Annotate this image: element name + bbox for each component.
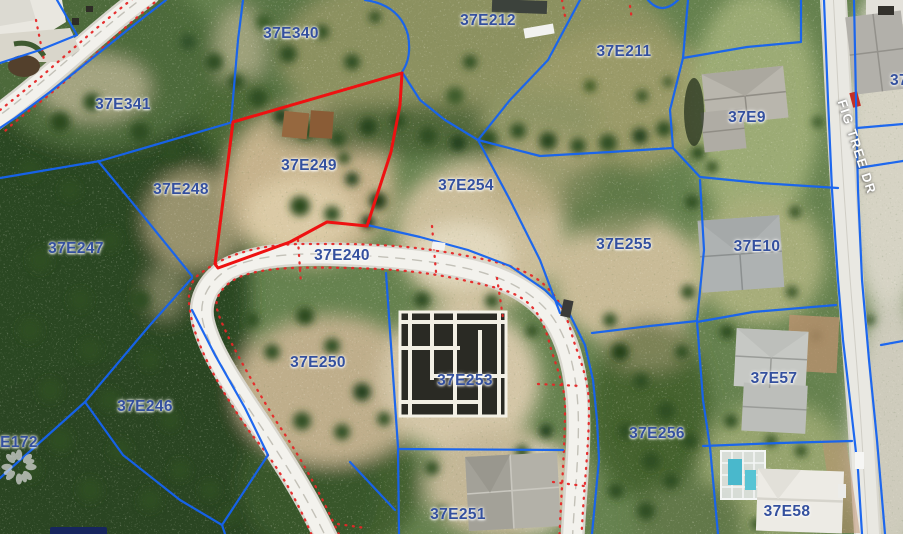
clipped-bottom-element bbox=[50, 527, 107, 534]
satellite-map: 37E34037E21237E21137E34137E93737E24837E2… bbox=[0, 0, 903, 534]
building-37e251-house bbox=[465, 452, 561, 531]
tree-shadow bbox=[684, 78, 704, 146]
cireba-logo-flower-icon bbox=[0, 448, 38, 486]
cireba-watermark: cireba bbox=[0, 448, 180, 528]
dark-vehicle bbox=[878, 6, 894, 15]
building-37e10-house bbox=[698, 215, 785, 293]
building-37e253-construction-site bbox=[400, 312, 506, 416]
